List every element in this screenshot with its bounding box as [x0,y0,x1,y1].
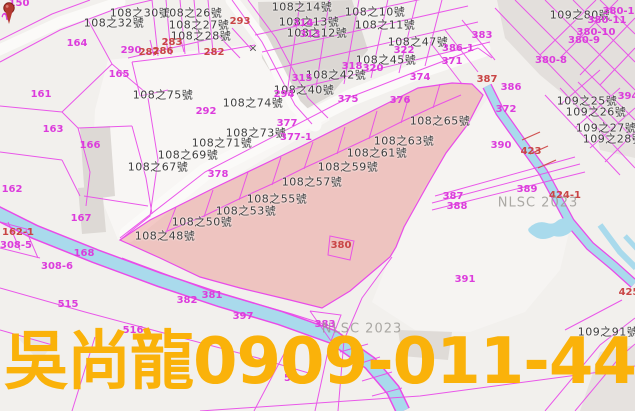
parcel-number-label: 315 [292,74,313,84]
parcel-number-label: 375 [338,95,359,105]
parcel-number-label: 168 [74,249,95,259]
parcel-number-label: 320 [363,64,384,74]
parcel-number-label: 515 [58,300,79,310]
parcel-number-label: 167 [71,214,92,224]
parcel-number-label: 376 [390,96,411,106]
parcel-number-label: 164 [67,39,88,49]
house-number-label: 108之61號 [347,148,408,159]
parcel-number-label: 313 [300,30,321,40]
parcel-number-label: 397 [233,312,254,322]
parcel-number-label: 371 [442,57,463,67]
parcel-number-label: 380-10 [577,28,616,38]
house-number-label: 108之14號 [272,2,333,13]
house-number-label: 109之26號 [566,107,627,118]
parcel-number-label: 383 [472,31,493,41]
parcel-number-label: 162-1 [2,228,34,238]
parcel-number-label: 166 [80,141,101,151]
parcel-number-label: 378 [208,170,229,180]
survey-mark: × [248,43,257,54]
house-number-label: 108之75號 [133,90,194,101]
parcel-number-label: 377-1 [280,133,312,143]
house-number-label: 108之48號 [135,231,196,242]
parcel-number-label: 381 [202,291,223,301]
parcel-number-label: 386 [501,83,522,93]
house-number-label: 108之57號 [282,177,343,188]
parcel-number-label: 387 [477,75,498,85]
parcel-number-label: 318 [342,62,363,72]
house-number-label: 108之71號 [192,138,253,149]
parcel-number-label: 374 [410,73,431,83]
parcel-number-label: 390 [491,141,512,151]
parcel-number-label: 425 [619,288,635,298]
map-pin[interactable] [0,0,18,26]
parcel-number-label: 380-8 [535,56,567,66]
house-number-label: 108之11號 [355,20,416,31]
parcel-number-label: 382 [177,296,198,306]
house-number-label: 108之10號 [345,7,406,18]
parcel-number-label: 391 [455,275,476,285]
house-number-label: 108之67號 [128,162,189,173]
parcel-number-label: 308-6 [41,262,73,272]
house-number-label: 108之55號 [247,194,308,205]
parcel-number-label: 322 [394,46,415,56]
parcel-number-label: 282 [204,48,225,58]
map-canvas[interactable]: 108之30號108之32號108之26號108之27號108之28號108之1… [0,0,635,411]
parcel-number-label: 165 [109,70,130,80]
parcel-number-label: 293 [230,17,251,27]
house-number-label: 108之69號 [158,150,219,161]
house-number-label: 108之59號 [318,162,379,173]
parcel-number-label: 389 [517,185,538,195]
parcel-number-label: 287 [139,48,160,58]
parcel-number-label: 314 [293,19,314,29]
parcel-number-label: 386-1 [442,44,474,54]
parcel-number-label: 380 [331,241,352,251]
parcel-number-label: 372 [496,105,517,115]
parcel-number-label: 388 [447,202,468,212]
map-source-watermark: NLSC 2023 [498,197,579,210]
parcel-number-label: 163 [43,125,64,135]
contact-watermark: 吳尚龍0909-011-448 [4,330,635,394]
parcel-number-label: 294 [274,90,295,100]
parcel-number-label: 423 [521,147,542,157]
parcel-number-label: 292 [196,107,217,117]
house-number-label: 108之65號 [410,116,471,127]
parcel-number-label: 380-11 [588,16,627,26]
parcel-number-label: 380-12 [603,7,635,17]
parcel-number-label: 162 [2,185,23,195]
house-number-label: 109之28號 [583,134,635,145]
parcel-number-label: 161 [31,90,52,100]
parcel-number-label: 394 [618,92,635,102]
house-number-label: 108之63號 [374,136,435,147]
house-number-label: 108之26號 [162,8,223,19]
parcel-number-label: 377 [277,119,298,129]
parcel-number-label: 308-5 [0,241,32,251]
house-number-label: 108之32號 [84,18,145,29]
house-number-label: 108之50號 [172,217,233,228]
